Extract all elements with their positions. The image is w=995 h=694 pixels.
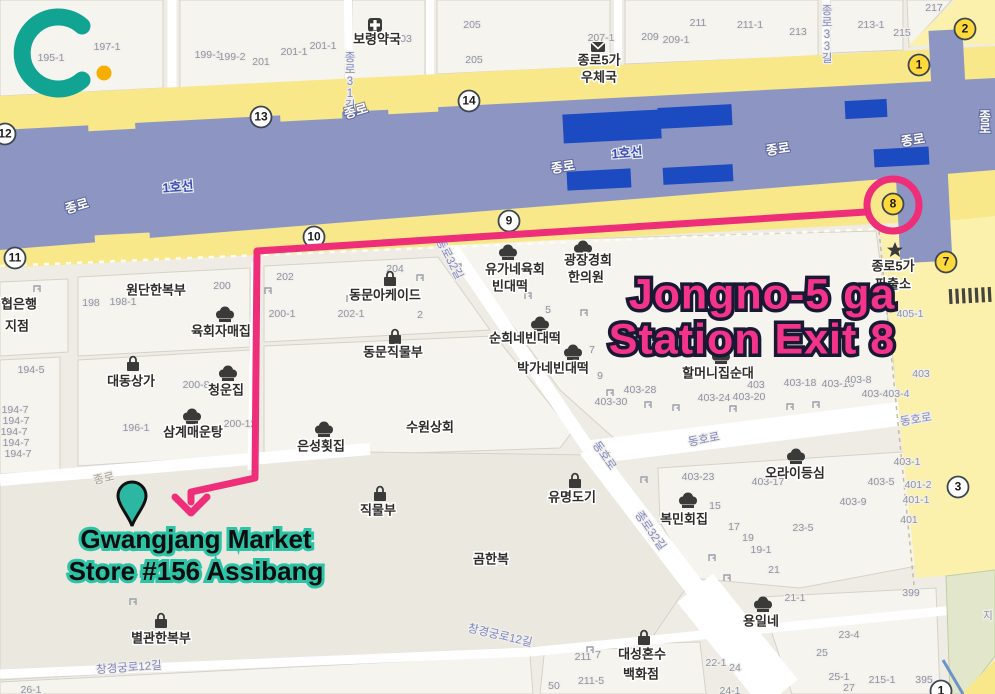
poi-label: 오라이등심 — [765, 465, 825, 480]
lot-number: 209 — [641, 31, 659, 43]
lot-number: 200-12 — [224, 418, 257, 430]
lot-number: 403-8 — [845, 374, 872, 386]
subway-exit-1: 1 — [931, 681, 952, 694]
lot-number: 403-20 — [733, 391, 766, 403]
lot-number: 211-5 — [578, 675, 604, 687]
subway-exit-14: 14 — [459, 91, 480, 112]
lot-number: 24-1 — [719, 685, 740, 694]
road-name-label: 종로 — [979, 109, 991, 136]
subway-exit-13: 13 — [251, 107, 272, 128]
poi-label: 동문아케이드 — [349, 287, 421, 302]
lot-number: 403-28 — [624, 384, 657, 396]
lot-number: 23-5 — [792, 522, 813, 534]
lot-number: 19 — [742, 532, 754, 544]
exit-number: 7 — [943, 255, 950, 269]
poi-label: 용일네 — [743, 613, 779, 628]
lot-number: 17 — [728, 521, 740, 533]
poi-label: 은성횟집 — [297, 438, 345, 453]
lot-number: 200-8 — [183, 379, 210, 391]
lot-number: 21-1 — [784, 592, 805, 604]
poi-label: 지점 — [5, 318, 29, 333]
lot-number: 198 — [82, 297, 100, 309]
map-svg: 195-1197-1199-1199-2201201-1201-10320520… — [0, 0, 995, 694]
lot-number: 2 — [417, 309, 423, 321]
exit-number: 12 — [0, 127, 12, 141]
poi-label: 순희네빈대떡 — [489, 330, 561, 345]
lot-number: 202 — [276, 271, 294, 283]
pharmacy-icon — [368, 18, 382, 32]
lot-number: 194-5 — [18, 364, 45, 376]
subway-exit-1: 1 — [909, 55, 930, 76]
poi-label: 대성혼수 — [618, 646, 666, 661]
exit-number: 10 — [307, 230, 321, 244]
mail-icon — [591, 42, 605, 52]
poi-label: 유명도기 — [548, 489, 596, 504]
poi-label: 보령약국 — [353, 31, 401, 46]
lot-number: 217 — [925, 2, 943, 14]
lot-number: 26-1 — [20, 684, 41, 694]
exit-number: 9 — [506, 214, 513, 228]
poi-label: 육회자매집 — [191, 323, 251, 338]
lot-number: 21 — [768, 564, 780, 576]
poi-label: 동문직물부 — [363, 344, 423, 359]
poi-label: 삼계매운탕 — [163, 424, 223, 439]
lot-number: 403 — [912, 368, 930, 380]
poi-label: 대동상가 — [107, 373, 155, 388]
lot-number: 197-1 — [94, 41, 121, 53]
exit-number: 1 — [938, 684, 945, 694]
lot-number: 200-1 — [269, 308, 296, 320]
destination-annotation-line1: Gwangjang Market — [80, 524, 311, 554]
lot-number: 204 — [386, 263, 404, 275]
lot-number: 201-1 — [310, 40, 337, 52]
lot-number: 401-1 — [903, 494, 930, 506]
lot-number: 403-9 — [840, 496, 867, 508]
lot-number: 209-1 — [663, 34, 690, 46]
lot-number: 199-2 — [219, 51, 246, 63]
poi-label: 청운집 — [208, 382, 244, 397]
map-canvas: 195-1197-1199-1199-2201201-1201-10320520… — [0, 0, 995, 694]
lot-number: 7 — [589, 344, 595, 356]
poi-label: 빈대떡 — [492, 278, 528, 293]
lot-number: 403-1 — [894, 456, 921, 468]
lot-number: 24 — [729, 662, 741, 674]
lot-number: 201-1 — [281, 46, 308, 58]
lot-number: 403-30 — [595, 396, 628, 408]
lot-number: 202-1 — [338, 308, 365, 320]
logo-dot-icon — [97, 66, 112, 81]
subway-line-label: 1호선 — [611, 144, 643, 161]
lot-number: 205 — [465, 54, 483, 66]
poi-label: 박가네빈대떡 — [517, 360, 589, 375]
lot-number: 지 — [983, 610, 993, 622]
lot-number: 211 — [690, 17, 707, 29]
lot-number: 198-1 — [110, 296, 137, 308]
destination-annotation-line2: Store #156 Assibang — [69, 556, 324, 586]
lot-number: 15 — [709, 500, 721, 512]
lot-number: 405-1 — [897, 308, 924, 320]
lot-number: 205 — [463, 19, 481, 31]
station-annotation-line2: Station Exit 8 — [609, 315, 895, 363]
lot-number: 403 — [747, 379, 765, 391]
lot-number: 211-1 — [737, 19, 763, 31]
subway-exit-12: 12 — [0, 124, 16, 145]
lot-number: 194-7 — [5, 448, 32, 460]
lot-number: 215 — [893, 27, 911, 39]
lot-number: 395 — [915, 674, 933, 686]
poi-label: 백화점 — [623, 666, 659, 681]
poi-label: 원단한복부 — [126, 282, 186, 297]
lot-number: 401-2 — [905, 479, 932, 491]
exit-number: 8 — [890, 197, 897, 211]
lot-number: 403-23 — [682, 471, 715, 483]
exit-number: 3 — [955, 480, 962, 494]
exit-number: 11 — [9, 251, 22, 265]
exit-number: 14 — [462, 94, 476, 108]
lot-number: 199-1 — [195, 49, 222, 61]
lot-number: 213-1 — [858, 19, 885, 31]
poi-label: 광장경희 — [564, 252, 612, 267]
lot-number: 211 — [575, 651, 592, 663]
lot-number: 399 — [902, 587, 920, 599]
poi-label: 곰한복 — [473, 551, 509, 566]
subway-exit-3: 3 — [948, 477, 969, 498]
poi-label: 복민회집 — [660, 511, 708, 526]
subway-exit-8: 8 — [883, 194, 904, 215]
subway-exit-11: 11 — [5, 248, 26, 269]
poi-label: 유가네육회 — [485, 261, 545, 276]
poi-label: 우체국 — [581, 69, 617, 84]
lot-number: 403-5 — [868, 476, 895, 488]
exit-number: 2 — [962, 22, 969, 36]
exit-number: 1 — [916, 58, 923, 72]
lot-number: 401 — [900, 514, 918, 526]
lot-number: 03 — [400, 33, 412, 45]
lot-number: 200 — [213, 280, 231, 292]
subway-exit-7: 7 — [936, 252, 957, 273]
poi-label: 협은행 — [1, 296, 37, 311]
subway-exit-9: 9 — [499, 211, 520, 232]
lot-number: 195-1 — [38, 52, 65, 64]
lot-number: 25 — [816, 647, 828, 659]
subway-line-label: 1호선 — [162, 178, 194, 195]
poi-label: 종로5가 — [577, 52, 620, 67]
lot-number: 215-1 — [869, 674, 896, 686]
lot-number: 22-1 — [705, 657, 726, 669]
subway-exit-2: 2 — [955, 19, 976, 40]
poi-label: 별관한복부 — [131, 630, 191, 645]
lot-number: 9 — [597, 370, 603, 382]
lot-number: 403-4 — [883, 388, 910, 400]
lot-number: 196-1 — [123, 422, 150, 434]
lot-number: 23-4 — [838, 629, 859, 641]
poi-label: 할머니집순대 — [682, 365, 754, 380]
park-area — [943, 570, 995, 694]
lot-number: 403-18 — [784, 377, 817, 389]
exit-number: 13 — [254, 110, 268, 124]
station-annotation-line1: Jongno-5 ga — [629, 270, 896, 318]
poi-label: 직물부 — [360, 502, 396, 517]
poi-label: 수원상회 — [406, 419, 454, 434]
lot-number: 5 — [545, 304, 551, 316]
poi-label: 한의원 — [568, 269, 604, 284]
lot-number: 201 — [252, 56, 270, 68]
lot-number: 19-1 — [750, 544, 771, 556]
lot-number: 50 — [548, 680, 560, 692]
lot-number: 27 — [843, 682, 855, 694]
lot-number: 213 — [789, 26, 807, 38]
lot-number: 403-24 — [698, 392, 731, 404]
lot-number: 7 — [595, 649, 601, 661]
